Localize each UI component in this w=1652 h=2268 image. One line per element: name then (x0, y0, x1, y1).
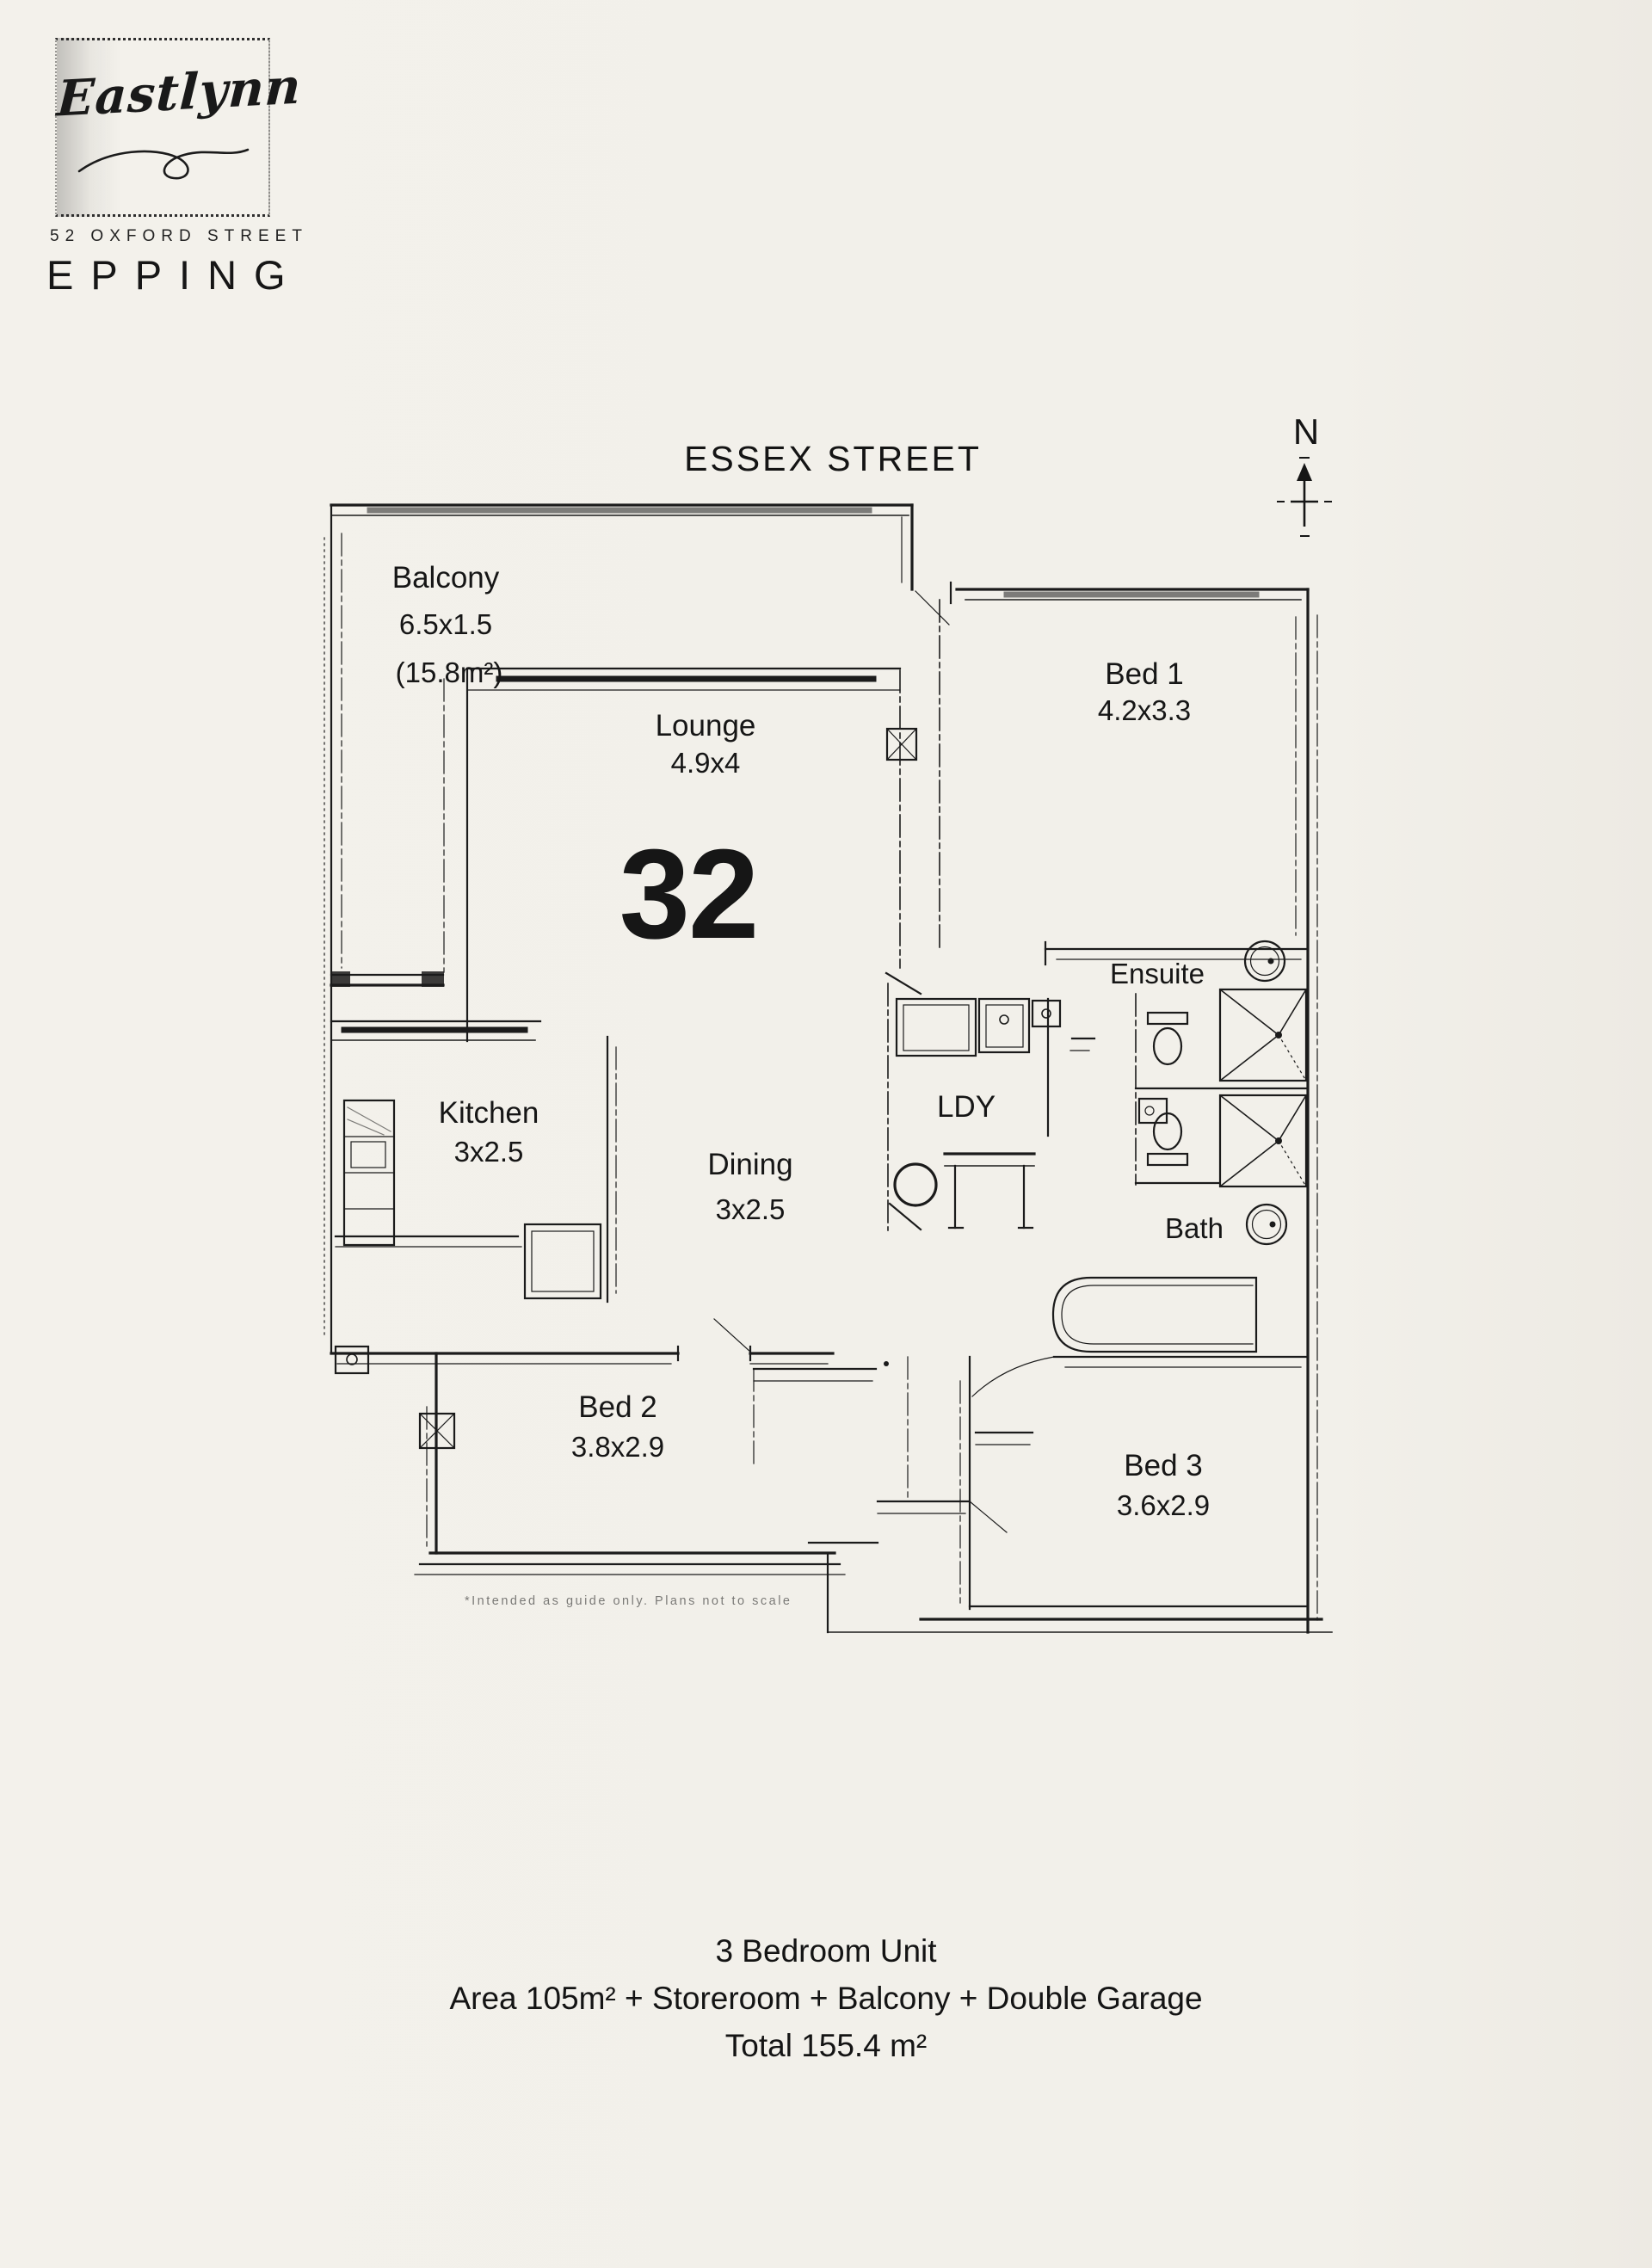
ensuite-basin (1245, 941, 1285, 981)
room-label-lounge: Lounge (656, 709, 756, 743)
room-label-bath: Bath (1165, 1212, 1224, 1244)
room-dims-kitchen: 3x2.5 (454, 1136, 524, 1168)
room-dims-dining: 3x2.5 (716, 1193, 786, 1225)
room-dims-balcony: 6.5x1.5 (399, 608, 492, 640)
room-dims-lounge: 4.9x4 (671, 747, 741, 779)
room-dims-bed1: 4.2x3.3 (1098, 694, 1191, 726)
laundry-sink (895, 1154, 1034, 1228)
flourish-icon (72, 142, 255, 187)
street-label: ESSEX STREET (684, 439, 982, 479)
letterhead-address: 52 OXFORD STREET (50, 227, 272, 246)
ensuite-toilet (1148, 1013, 1187, 1064)
north-label: N (1272, 411, 1341, 453)
room-label-laundry: LDY (937, 1090, 996, 1124)
room-area-balcony: (15.8m²) (396, 656, 503, 688)
room-label-bed1: Bed 1 (1105, 657, 1183, 691)
bath-cabinet (1139, 1099, 1167, 1123)
bath-shower (1220, 1095, 1306, 1186)
unit-summary: 3 Bedroom Unit Area 105m² + Storeroom + … (0, 1927, 1652, 2069)
plan-disclaimer: *Intended as guide only. Plans not to sc… (465, 1594, 792, 1608)
room-dims-bed3: 3.6x2.9 (1117, 1489, 1210, 1521)
ensuite-shower (1220, 989, 1306, 1081)
summary-line-1: 3 Bedroom Unit (0, 1927, 1652, 1975)
summary-line-3: Total 155.4 m² (0, 2022, 1652, 2069)
room-label-kitchen: Kitchen (439, 1096, 539, 1130)
room-label-bed3: Bed 3 (1124, 1449, 1202, 1482)
bath-basin (1247, 1205, 1286, 1244)
room-label-ensuite: Ensuite (1110, 958, 1205, 989)
letterhead-name: Eastlynn (55, 59, 269, 127)
room-label-dining: Dining (707, 1148, 792, 1181)
unit-number: 32 (619, 823, 758, 965)
room-label-balcony: Balcony (392, 561, 500, 595)
room-label-bed2: Bed 2 (578, 1390, 656, 1424)
bathtub (1053, 1278, 1256, 1352)
letterhead-box: Eastlynn (55, 38, 270, 217)
scanned-floorplan-page: Eastlynn 52 OXFORD STREET EPPING ESSEX S… (0, 0, 1652, 2268)
laundry-tubs (897, 999, 1094, 1056)
room-dims-bed2: 3.8x2.9 (571, 1431, 664, 1463)
letterhead-suburb: EPPING (46, 251, 275, 299)
floor-plan: Balcony 6.5x1.5 (15.8m²) Lounge 4.9x4 32… (318, 486, 1351, 1682)
kitchen-island (525, 1224, 601, 1298)
summary-line-2: Area 105m² + Storeroom + Balcony + Doubl… (0, 1975, 1652, 2022)
